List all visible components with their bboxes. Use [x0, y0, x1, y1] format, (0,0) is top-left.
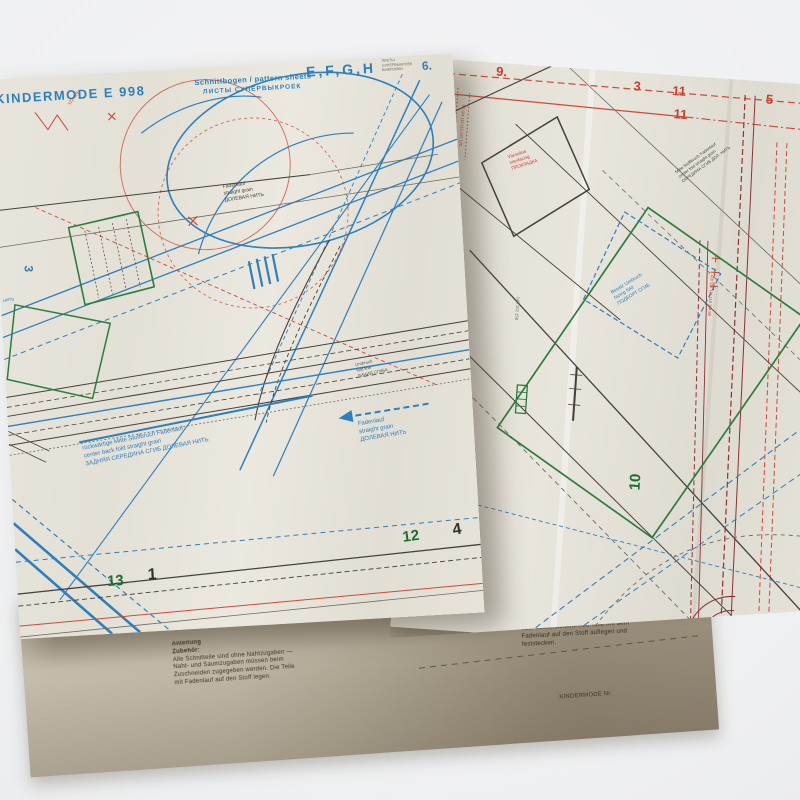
arrow-left-icon	[338, 410, 354, 424]
photo-backdrop: Anleitung Zubehör: Alle Schnitteile sind…	[0, 0, 800, 800]
piece-number-5: 5	[765, 92, 773, 107]
piece-number-11b: 11	[673, 106, 688, 122]
piece-number-11: 11	[672, 83, 687, 99]
piece-number-6: 6.	[422, 58, 433, 73]
pattern-sheet-left: KINDERMODE E 998 Schnittbogen / pattern …	[0, 53, 484, 639]
piece-number-3-blue: 3	[22, 265, 36, 272]
piece-number-3: 3	[633, 78, 641, 93]
corner-note: ЛИСТЫ СУПЕРВЫКРОЕК ВЫКРОЙКИ	[381, 58, 412, 74]
piece-number-12: 12	[402, 527, 421, 546]
piece-number-9: 9.	[496, 64, 508, 80]
piece-number-1: 1	[147, 566, 157, 584]
pattern-lines-left	[0, 53, 484, 639]
piece-number-10: 10	[626, 473, 644, 491]
piece-number-13: 13	[107, 572, 125, 590]
